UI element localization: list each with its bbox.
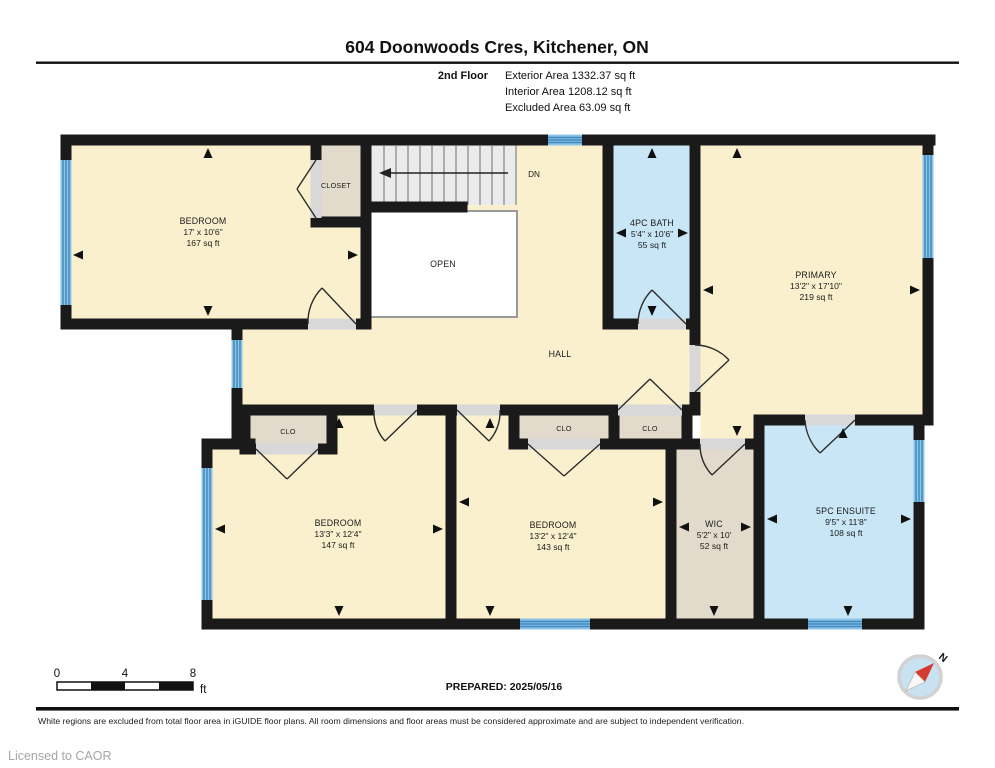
- svg-text:219 sq ft: 219 sq ft: [800, 292, 834, 302]
- window: [520, 619, 590, 630]
- label-clo-left: CLO: [280, 427, 296, 436]
- stairs: [372, 146, 517, 206]
- page-title: 604 Doonwoods Cres, Kitchener, ON: [345, 37, 648, 57]
- svg-text:9'5" x 11'8": 9'5" x 11'8": [825, 517, 867, 527]
- floor-plan-svg: 604 Doonwoods Cres, Kitchener, ON 2nd Fl…: [0, 0, 995, 768]
- svg-text:WIC: WIC: [705, 519, 723, 529]
- svg-text:BEDROOM: BEDROOM: [315, 518, 362, 528]
- disclaimer-text: White regions are excluded from total fl…: [38, 716, 744, 726]
- scale-tick-8: 8: [190, 668, 196, 680]
- floor-plan: BEDROOM 17' x 10'6" 167 sq ft CLOSET DN …: [61, 135, 934, 630]
- stat-exterior: Exterior Area 1332.37 sq ft: [505, 70, 635, 82]
- stat-interior: Interior Area 1208.12 sq ft: [505, 86, 632, 98]
- svg-text:PRIMARY: PRIMARY: [795, 270, 836, 280]
- window: [923, 155, 934, 258]
- scale-unit: ft: [200, 684, 207, 696]
- prepared-date: PREPARED: 2025/05/16: [446, 681, 563, 693]
- header: 604 Doonwoods Cres, Kitchener, ON 2nd Fl…: [36, 37, 959, 114]
- svg-text:143 sq ft: 143 sq ft: [537, 542, 571, 552]
- svg-text:5'4" x 10'6": 5'4" x 10'6": [631, 229, 673, 239]
- window: [548, 135, 582, 146]
- label-bedroom-top-left: BEDROOM 17' x 10'6" 167 sq ft: [180, 216, 227, 248]
- svg-text:147 sq ft: 147 sq ft: [322, 540, 356, 550]
- svg-text:55 sq ft: 55 sq ft: [638, 240, 667, 250]
- window: [232, 340, 243, 388]
- svg-text:108 sq ft: 108 sq ft: [830, 528, 864, 538]
- svg-text:5PC ENSUITE: 5PC ENSUITE: [816, 506, 876, 516]
- svg-text:13'2" x 17'10": 13'2" x 17'10": [790, 281, 842, 291]
- svg-text:BEDROOM: BEDROOM: [530, 520, 577, 530]
- license-text: Licensed to CAOR: [8, 749, 112, 763]
- svg-text:17' x 10'6": 17' x 10'6": [183, 227, 222, 237]
- compass-icon: N: [899, 651, 950, 698]
- svg-text:BEDROOM: BEDROOM: [180, 216, 227, 226]
- stat-excluded: Excluded Area 63.09 sq ft: [505, 102, 630, 114]
- label-clo-mid: CLO: [556, 424, 572, 433]
- footer-divider: [36, 707, 959, 711]
- svg-text:5'2" x 10': 5'2" x 10': [697, 530, 732, 540]
- floor-label: 2nd Floor: [438, 70, 489, 82]
- label-dn: DN: [528, 170, 540, 179]
- label-clo-right: CLO: [642, 424, 658, 433]
- svg-text:13'2" x 12'4": 13'2" x 12'4": [529, 531, 576, 541]
- header-divider: [36, 62, 959, 64]
- label-hall: HALL: [549, 349, 572, 359]
- scale-tick-4: 4: [122, 668, 129, 680]
- scale-bar: 0 4 8 ft: [54, 668, 207, 696]
- svg-text:167 sq ft: 167 sq ft: [187, 238, 221, 248]
- footer: 0 4 8 ft PREPARED: 2025/05/16 N White re…: [8, 651, 959, 763]
- compass-north-label: N: [936, 651, 949, 665]
- label-open: OPEN: [430, 259, 456, 269]
- scale-tick-0: 0: [54, 668, 60, 680]
- window: [914, 440, 925, 502]
- scale-bar-segment: [159, 682, 193, 690]
- window: [808, 619, 862, 630]
- window: [61, 160, 72, 305]
- window: [202, 468, 213, 600]
- scale-bar-segment: [91, 682, 125, 690]
- label-closet: CLOSET: [321, 181, 351, 190]
- floor-plan-sheet: 604 Doonwoods Cres, Kitchener, ON 2nd Fl…: [0, 0, 995, 768]
- svg-text:4PC BATH: 4PC BATH: [630, 218, 674, 228]
- svg-text:52 sq ft: 52 sq ft: [700, 541, 729, 551]
- svg-text:13'3" x 12'4": 13'3" x 12'4": [314, 529, 361, 539]
